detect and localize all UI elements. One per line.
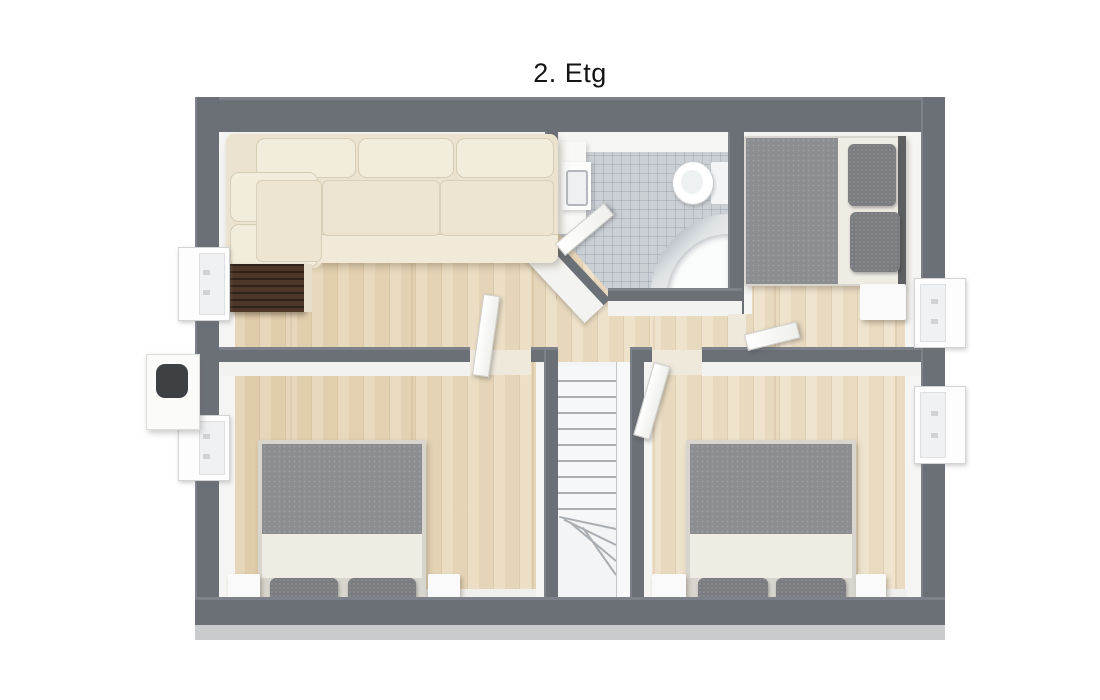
toilet-bowl-inner [681,170,703,194]
stair-treads [558,366,616,522]
window-west-living-recess [199,253,225,315]
bathroom-south-wall [608,288,742,301]
window-handle [931,319,938,324]
bed-ur-duvet [746,138,838,284]
stair-stringer [616,362,631,602]
window-east-bedroom-upper [914,278,966,348]
dark-wood-deck-rim [304,264,312,312]
window-handle [203,290,210,295]
window-handle [931,433,938,438]
window-east-lower-recess [920,392,946,458]
window-east-upper-recess [920,284,946,342]
window-west-bedroom-recess [199,421,225,475]
stair-east-wall [630,350,644,602]
mid-wall-east-face [702,362,921,376]
sofa-seat-cushion-2 [440,180,554,236]
bed-lr-duvet [690,444,852,534]
mid-wall-east [702,347,928,362]
floorplan-canvas: 2. Etg [0,0,1100,700]
exterior-wall-east [921,97,945,625]
window-handle [931,299,938,304]
stair-west-wall [544,350,558,602]
bed-ur-pillow-2 [850,212,900,272]
window-handle [203,270,210,275]
window-handle [203,434,210,439]
window-handle [203,454,210,459]
bed-ur-pillow-1 [848,144,896,206]
bathroom-south-wall-face [608,301,742,316]
mid-wall-west [219,347,470,362]
nightstand-ur [860,284,906,320]
window-east-bedroom-lower [914,386,966,464]
sofa-seat-cushion-1 [322,180,440,236]
sofa-back-cushion-3 [456,138,554,178]
dark-wood-deck [228,264,304,312]
stair-west-wall-face [536,362,544,598]
bed-ll-sheet [262,534,422,578]
bed-ll-duvet [262,444,422,534]
exterior-wall-south-outer [195,625,945,640]
floor-title: 2. Etg [195,58,945,89]
sofa-corner-cushion [256,180,322,262]
window-handle [931,411,938,416]
exterior-wall-north [195,97,945,132]
window-west-living [178,247,230,321]
chimney-vent [156,364,188,398]
mid-wall-west-face [219,362,470,376]
bed-lr-sheet [690,534,852,578]
sofa-back-cushion-2 [358,138,454,178]
exterior-wall-south [195,597,945,625]
bathroom-sink [566,170,588,206]
